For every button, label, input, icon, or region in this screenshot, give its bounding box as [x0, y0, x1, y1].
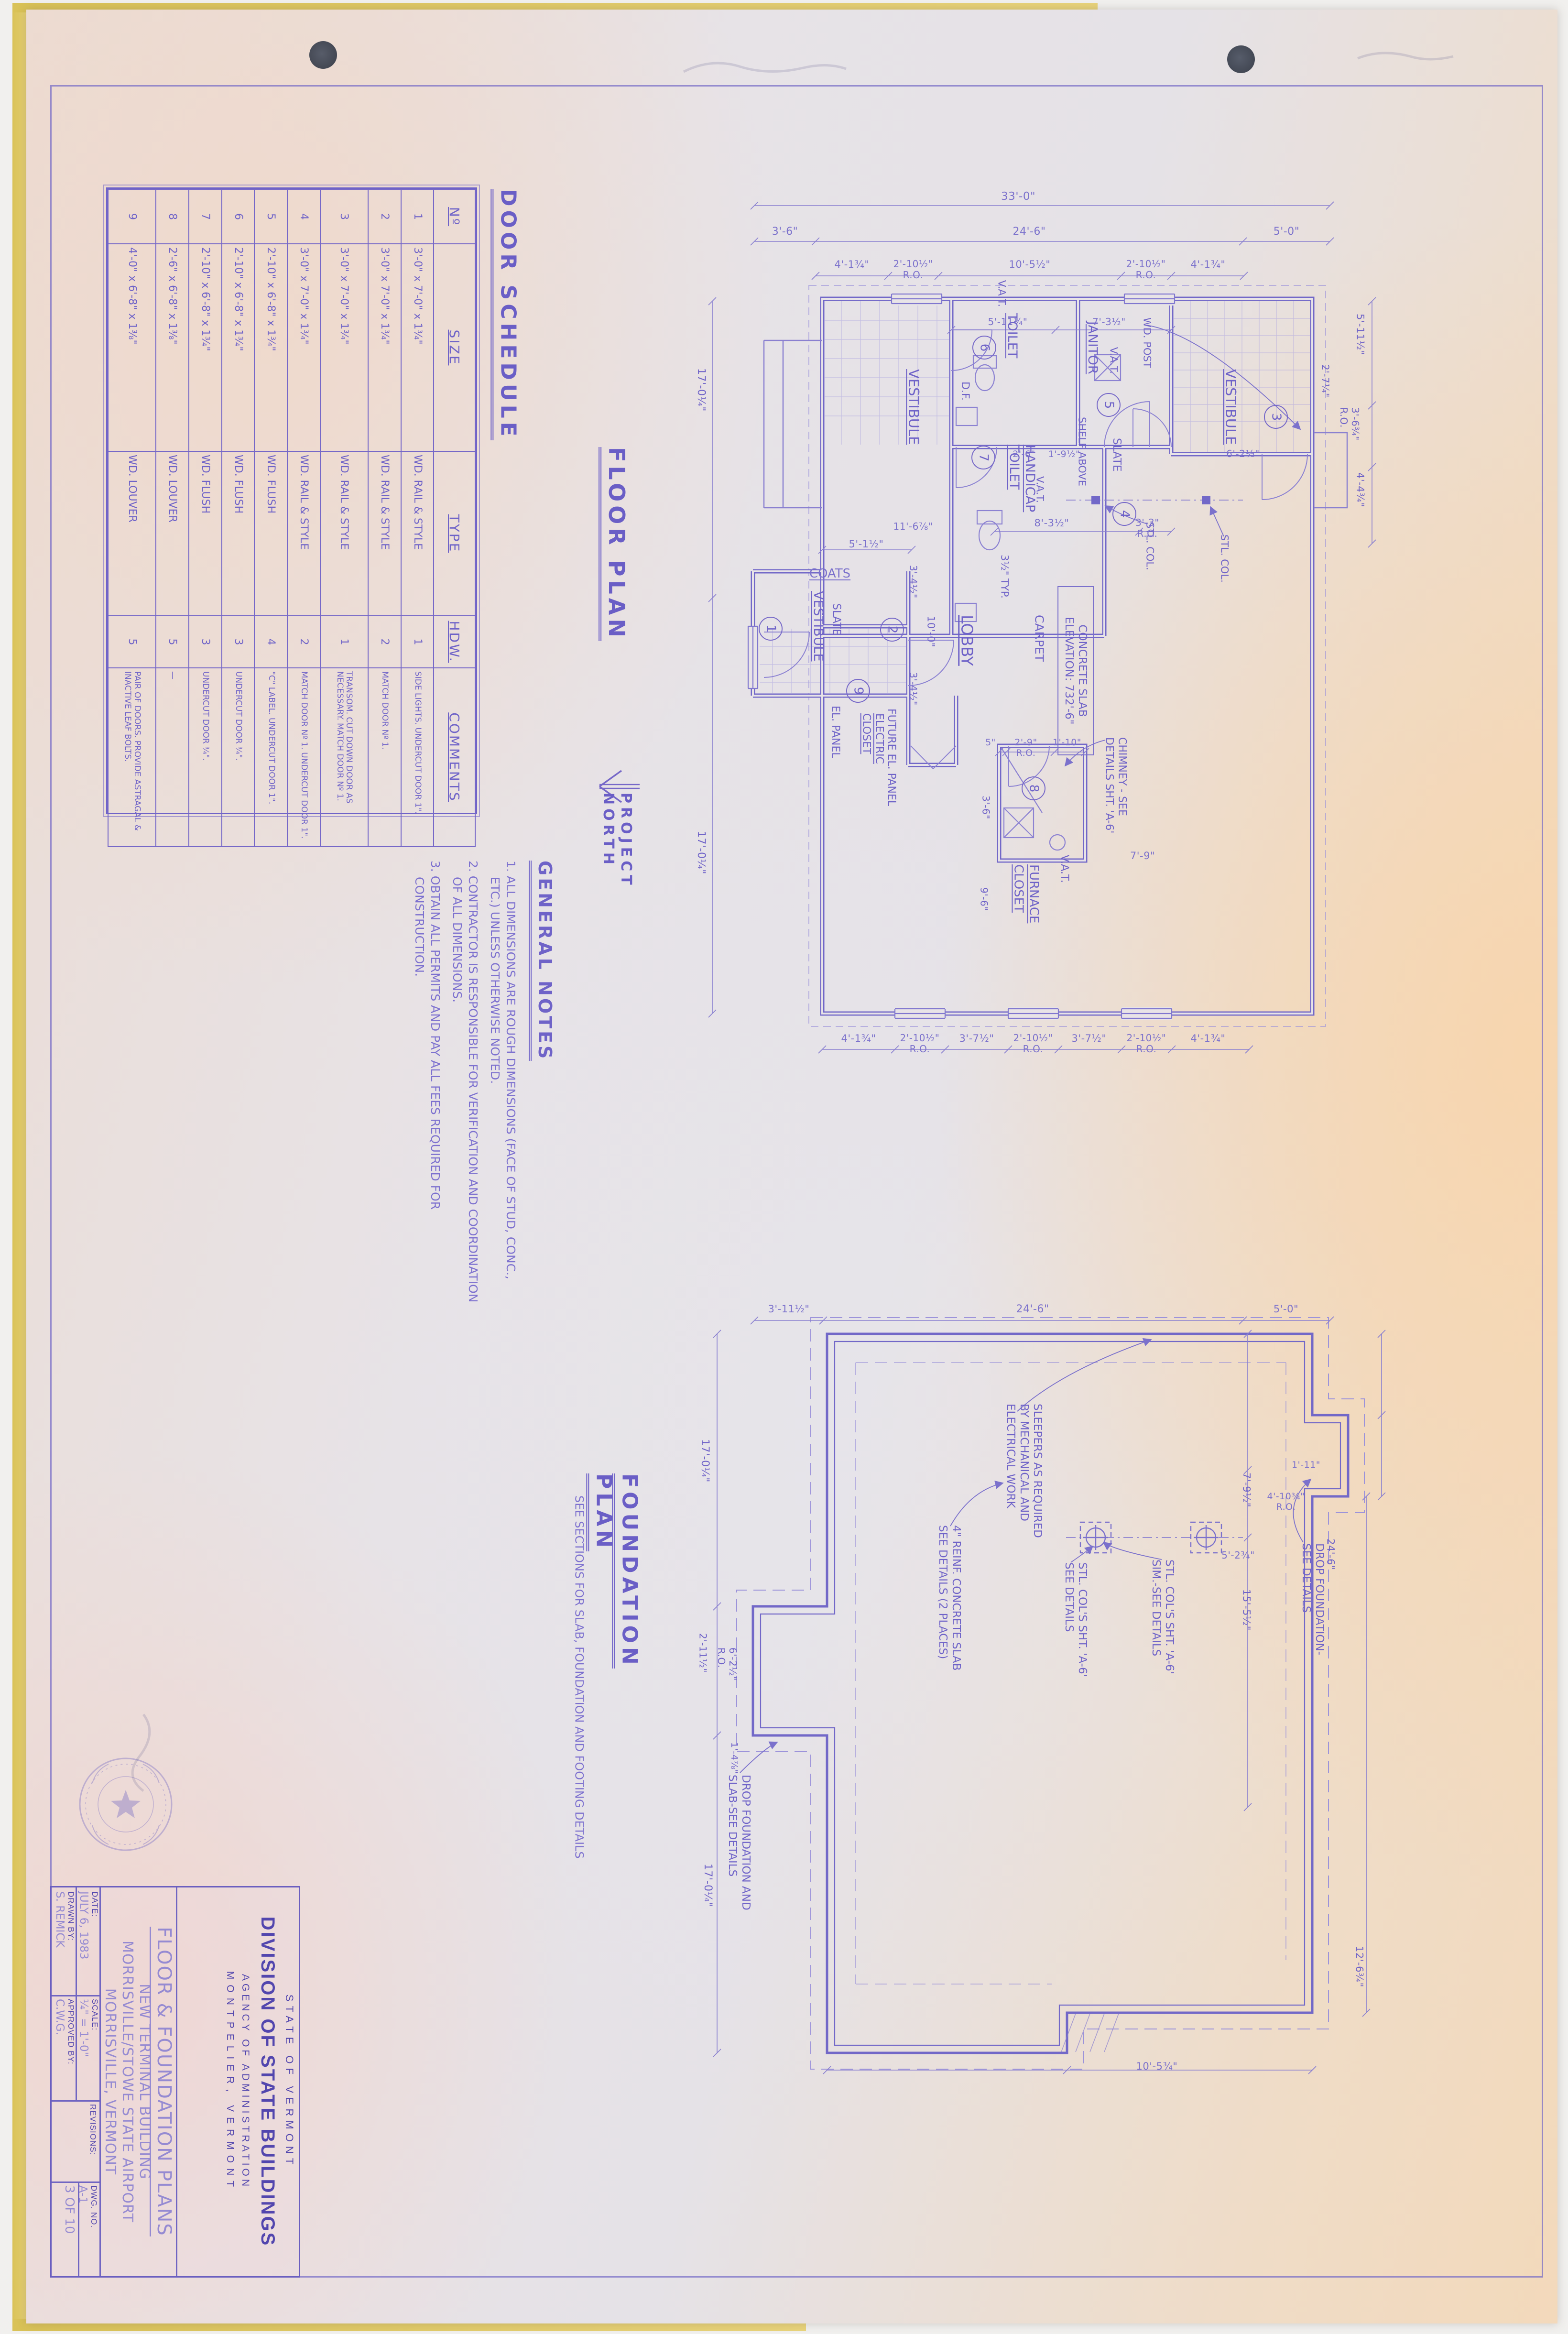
schedule-row: 62'-10" x 6'-8" x 1¾"WD. FLUSH3UNDERCUT …: [222, 189, 255, 847]
plan-label: FOUNDATION PLAN: [591, 1473, 642, 1741]
schedule-cell-comments: UNDERCUT DOOR ¾".: [189, 668, 222, 847]
plan-label: 5'-0": [1274, 1303, 1298, 1315]
door-number-bubble: 5: [1097, 393, 1121, 417]
plan-label: VESTIBULE: [810, 591, 826, 744]
plan-label: DROP FOUNDATION AND SLAB-SEE DETAILS: [726, 1775, 752, 1980]
general-notes: GENERAL NOTES 1. ALL DIMENSIONS ARE ROUG…: [398, 861, 555, 1305]
dimension-line: [812, 272, 1248, 280]
schedule-cell-hdw: 2: [287, 616, 320, 668]
titleblock-dwg-no: DWG. NO. A-1: [79, 2185, 98, 2274]
plan-label: CARPET: [1032, 615, 1046, 720]
schedule-cell-no: 4: [287, 189, 320, 244]
plan-label: SHELF ABOVE: [1076, 417, 1088, 560]
schedule-cell-comments: MATCH DOOR Nº 1. UNDERCUT DOOR 1".: [287, 668, 320, 847]
plan-label: 2'-10½" R.O.: [1127, 1033, 1166, 1055]
general-note-item: 1. ALL DIMENSIONS ARE ROUGH DIMENSIONS (…: [487, 861, 518, 1305]
schedule-cell-hdw: 5: [108, 616, 156, 668]
plan-label: 3'-7½": [959, 1033, 994, 1044]
plan-label: 17'-0¼": [701, 1864, 714, 1950]
plan-label: 1'-4⅞": [729, 1742, 740, 1804]
door-number-bubble: 8: [1022, 776, 1045, 800]
schedule-cell-type: WD. FLUSH: [222, 451, 255, 616]
schedule-cell-comments: PAIR OF DOORS. PROVIDE ASTRAGAL & INACTI…: [108, 668, 156, 847]
titleblock-agency: STATE OF VERMONT DIVISION OF STATE BUILD…: [181, 1893, 309, 2270]
plan-label: 3½" TYP.: [998, 555, 1011, 631]
dimension-line: [1362, 1493, 1370, 2017]
door-number-bubble: 7: [971, 446, 995, 469]
plan-label: 10'-5¾": [1136, 2061, 1178, 2072]
plan-label: D.F.: [958, 382, 971, 425]
dimension-line: [1368, 297, 1376, 547]
schedule-cell-type: WD. FLUSH: [189, 451, 222, 616]
schedule-cell-size: 2'-10" x 6'-8" x 1¾": [254, 244, 287, 451]
plan-label: STL. COL'S SHT. 'A-6' SIM.-SEE DETAILS: [1149, 1560, 1176, 1741]
plan-label: 2'-7¼": [1319, 364, 1331, 431]
plan-label: 17'-0¼": [698, 1439, 711, 1525]
plan-label: 12'-6¾": [1353, 1946, 1365, 2027]
plan-label: 5": [985, 738, 996, 748]
plan-label: ELECTRIC CLOSET: [860, 713, 885, 828]
plan-label: STL. COL.: [1218, 534, 1230, 621]
schedule-cell-size: 2'-6" x 6'-8" x 1⅜": [156, 244, 189, 451]
door-number-bubble: 1: [759, 617, 783, 641]
titleblock-project-name: NEW TERMINAL BUILDING MORRISVILLE/STOWE …: [102, 1893, 153, 2270]
door-number-bubble: 6: [972, 336, 996, 360]
door-number-bubble: 4: [1112, 502, 1136, 526]
plan-label: 2'-10½" R.O.: [893, 259, 933, 281]
plan-label: 5'-2¾": [1221, 1550, 1255, 1561]
schedule-cell-type: WD. LOUVER: [156, 451, 189, 616]
plan-label: 6'-2½" R.O.: [715, 1647, 739, 1724]
schedule-cell-comments: TRANSOM. CUT DOWN DOOR AS NECESSARY. MAT…: [320, 668, 368, 847]
plan-label: 3'-6": [772, 226, 798, 238]
dimension-line: [1244, 1330, 1252, 1811]
plan-label: SLEEPERS AS REQUIRED BY MECHANICAL AND E…: [1004, 1404, 1044, 1595]
plan-label: 5'-11½": [1354, 314, 1366, 395]
plan-label: 4'-4¾": [1354, 472, 1366, 544]
schedule-cell-size: 4'-0" x 6'-8" x 1⅜": [108, 244, 156, 451]
titleblock-approved-by: APPROVED BY: C.W.G.: [53, 1999, 76, 2097]
schedule-header: Nº: [434, 189, 475, 244]
titleblock-date: DATE: JULY 6, 1983: [76, 1891, 99, 1992]
schedule-row: 43'-0" x 7'-0" x 1¾"WD. RAIL & STYLE2MAT…: [287, 189, 320, 847]
plan-label: 10'-5½": [1009, 259, 1051, 270]
plan-label: 4'-1¾": [834, 259, 869, 270]
plan-label: 7'-9½": [1240, 1472, 1252, 1549]
plan-label: 4" REINF. CONCRETE SLAB SEE DETAILS (2 P…: [936, 1525, 963, 1735]
schedule-header: HDW.: [434, 616, 475, 668]
plan-label: 2'-9" R.O.: [1014, 738, 1037, 759]
titleblock-sheet-title: FLOOR & FOUNDATION PLANS: [153, 1893, 175, 2270]
schedule-cell-hdw: 3: [222, 616, 255, 668]
plan-label: V.A.T.: [1107, 347, 1120, 395]
plan-label: 17'-0¼": [694, 831, 707, 917]
schedule-cell-size: 3'-0" x 7'-0" x 1¾": [320, 244, 368, 451]
plan-label: 17'-0¼": [694, 368, 707, 454]
plan-label: 5'-11¼": [988, 316, 1028, 327]
plan-label: 2'-6": [1013, 449, 1035, 460]
title-block: DATE: JULY 6, 1983 DRAWN BY: S. REMICK S…: [50, 1886, 300, 2278]
schedule-cell-type: WD. LOUVER: [108, 451, 156, 616]
schedule-cell-no: 2: [368, 189, 401, 244]
plan-label: COATS: [809, 567, 850, 581]
dimension-line: [1378, 1330, 1385, 1500]
plan-label: V.A.T.: [1057, 855, 1070, 907]
dimension-line: [751, 238, 1334, 245]
schedule-cell-size: 3'-0" x 7'-0" x 1¾": [287, 244, 320, 451]
plan-label: EL. PANEL: [828, 706, 841, 816]
plan-label: 3'-11½": [768, 1303, 810, 1315]
plan-label: 3'-7½": [1071, 1033, 1106, 1044]
schedule-row: 72'-10" x 6'-8" x 1¾"WD. FLUSH3UNDERCUT …: [189, 189, 222, 847]
plan-label: 15'-5½": [1240, 1589, 1252, 1675]
plan-label: FLOOR PLAN: [603, 447, 630, 676]
plan-label: 33'-0": [1001, 190, 1035, 203]
schedule-cell-no: 3: [320, 189, 368, 244]
plan-label: VESTIBULE: [905, 369, 922, 527]
schedule-row: 33'-0" x 7'-0" x 1¾"WD. RAIL & STYLE1TRA…: [320, 189, 368, 847]
plan-label: LOBBY: [957, 615, 976, 715]
plan-label: 3'-6": [980, 796, 991, 858]
plan-label: 5'-0": [1274, 226, 1300, 238]
schedule-cell-comments: "C" LABEL. UNDERCUT DOOR 1".: [254, 668, 287, 847]
plan-label: V.A.T.: [1034, 476, 1046, 524]
plan-label: 3'-4½": [907, 565, 919, 632]
plan-label: FURNACE CLOSET: [1011, 864, 1041, 1003]
plan-label: 7'-3½": [1092, 316, 1126, 327]
plan-label: 4'-1¾": [841, 1033, 876, 1044]
plan-label: SEE SECTIONS FOR SLAB, FOUNDATION AND FO…: [572, 1495, 586, 1926]
schedule-cell-size: 2'-10" x 6'-8" x 1¾": [222, 244, 255, 451]
plan-label: 2'-10½" R.O.: [1013, 1033, 1053, 1055]
door-number-bubble: 2: [880, 618, 904, 642]
schedule-cell-no: 9: [108, 189, 156, 244]
plan-label: 4'-1¾": [1190, 259, 1225, 270]
plan-label: 4'-10¾" R.O.: [1267, 1492, 1305, 1513]
plan-label: 1'-10": [1053, 738, 1081, 748]
schedule-cell-type: WD. RAIL & STYLE: [368, 451, 401, 616]
door-number-bubble: 9: [846, 679, 870, 703]
schedule-row: 13'-0" x 7'-0" x 1¾"WD. RAIL & STYLE1SID…: [401, 189, 434, 847]
plan-label: 3'-3" R.O.: [1135, 517, 1159, 539]
schedule-cell-comments: UNDERCUT DOOR ¾".: [222, 668, 255, 847]
plan-label: CHIMNEY - SEE DETAILS SHT. 'A-6': [1102, 737, 1128, 895]
schedule-cell-comments: —: [156, 668, 189, 847]
schedule-cell-no: 1: [401, 189, 434, 244]
plan-label: 2'-10½" R.O.: [1126, 259, 1166, 281]
plan-label: FUTURE EL. PANEL: [884, 709, 897, 881]
titleblock-scale: SCALE: ¼" = 1'-0": [76, 1999, 99, 2097]
schedule-cell-size: 3'-0" x 7'-0" x 1¾": [368, 244, 401, 451]
plan-label: 24'-6": [1013, 226, 1045, 238]
plan-label: STL. COL'S SHT. 'A-6' SEE DETAILS: [1062, 1562, 1089, 1744]
plan-label: 24'-6": [1016, 1303, 1049, 1315]
schedule-cell-no: 6: [222, 189, 255, 244]
plan-label: 2'-11½": [697, 1633, 708, 1705]
blueprint-scan: { "sheet": { "drawing_number": "A-1", "s…: [0, 0, 1568, 2334]
schedule-cell-hdw: 2: [368, 616, 401, 668]
titleblock-sheet-count: 3 OF 10: [54, 2185, 76, 2274]
schedule-cell-hdw: 3: [189, 616, 222, 668]
door-number-bubble: 3: [1264, 405, 1288, 429]
plan-label: PROJECT NORTH: [599, 793, 634, 936]
schedule-cell-type: WD. RAIL & STYLE: [287, 451, 320, 616]
plan-label: 1'-11": [1292, 1460, 1320, 1471]
plan-label: SLATE: [829, 603, 842, 685]
dimension-lines: [708, 202, 1385, 2074]
door-schedule-title: DOOR SCHEDULE: [495, 189, 546, 562]
schedule-row: 82'-6" x 6'-8" x 1⅜"WD. LOUVER5—: [156, 189, 189, 847]
plan-label: CONCRETE SLAB ELEVATION: 732'-6": [1057, 586, 1094, 755]
schedule-cell-no: 5: [254, 189, 287, 244]
plan-label: 10'-0": [925, 616, 937, 687]
plan-label: WD. POST: [1141, 317, 1153, 418]
architect-seal: [80, 1758, 172, 1850]
dimension-line: [708, 297, 716, 1017]
schedule-cell-size: 2'-10" x 6'-8" x 1¾": [189, 244, 222, 451]
schedule-cell-no: 7: [189, 189, 222, 244]
door-schedule-table: NºSIZETYPEHDW.COMMENTS13'-0" x 7'-0" x 1…: [106, 187, 477, 814]
schedule-header: SIZE: [434, 244, 475, 451]
plan-label: 24'-6": [1324, 1538, 1337, 1615]
schedule-header: COMMENTS: [434, 668, 475, 847]
plan-label: 8'-3½": [1034, 517, 1069, 529]
schedule-cell-comments: SIDE LIGHTS. UNDERCUT DOOR 1".: [401, 668, 434, 847]
plan-label: 1'-9½": [1048, 449, 1080, 460]
schedule-cell-hdw: 4: [254, 616, 287, 668]
general-note-item: 2. CONTRACTOR IS RESPONSIBLE FOR VERIFIC…: [449, 861, 480, 1305]
schedule-cell-hdw: 1: [401, 616, 434, 668]
plan-label: 6'-2½": [1226, 448, 1260, 459]
titleblock-drawn-by: DRAWN BY: S. REMICK: [53, 1891, 76, 1992]
schedule-cell-comments: MATCH DOOR Nº 1.: [368, 668, 401, 847]
plan-label: 11'-6⅞": [893, 521, 933, 532]
plan-label: 4'-1¾": [1190, 1033, 1225, 1044]
schedule-cell-type: WD. RAIL & STYLE: [401, 451, 434, 616]
plan-label: HANDICAP TOILET: [1006, 445, 1037, 588]
schedule-cell-hdw: 1: [320, 616, 368, 668]
schedule-cell-type: WD. FLUSH: [254, 451, 287, 616]
schedule-row: 23'-0" x 7'-0" x 1¾"WD. RAIL & STYLE2MAT…: [368, 189, 401, 847]
schedule-row: 52'-10" x 6'-8" x 1¾"WD. FLUSH4"C" LABEL…: [254, 189, 287, 847]
foundation-plan-drawing: [737, 1318, 1364, 2069]
schedule-row: 94'-0" x 6'-8" x 1⅜"WD. LOUVER5PAIR OF D…: [108, 189, 156, 847]
dimension-line: [751, 202, 1334, 209]
schedule-cell-no: 8: [156, 189, 189, 244]
plan-label: 2'-10½" R.O.: [900, 1033, 940, 1055]
plan-label: 3'-4½": [907, 672, 919, 739]
schedule-cell-size: 3'-0" x 7'-0" x 1¾": [401, 244, 434, 451]
titleblock-revisions: REVISIONS:: [76, 2104, 98, 2181]
general-note-item: 3. OBTAIN ALL PERMITS AND PAY ALL FEES R…: [412, 861, 443, 1305]
plan-label: 9'-6": [978, 887, 990, 949]
schedule-cell-type: WD. RAIL & STYLE: [320, 451, 368, 616]
plan-label: DROP FOUNDATION- SEE DETAILS: [1299, 1543, 1326, 1715]
plan-label: 5'-1½": [849, 538, 883, 550]
general-notes-title: GENERAL NOTES: [529, 861, 555, 1061]
schedule-cell-hdw: 5: [156, 616, 189, 668]
schedule-header: TYPE: [434, 451, 475, 616]
plan-label: 7'-9": [1130, 850, 1155, 862]
dimension-line: [823, 2066, 1316, 2074]
